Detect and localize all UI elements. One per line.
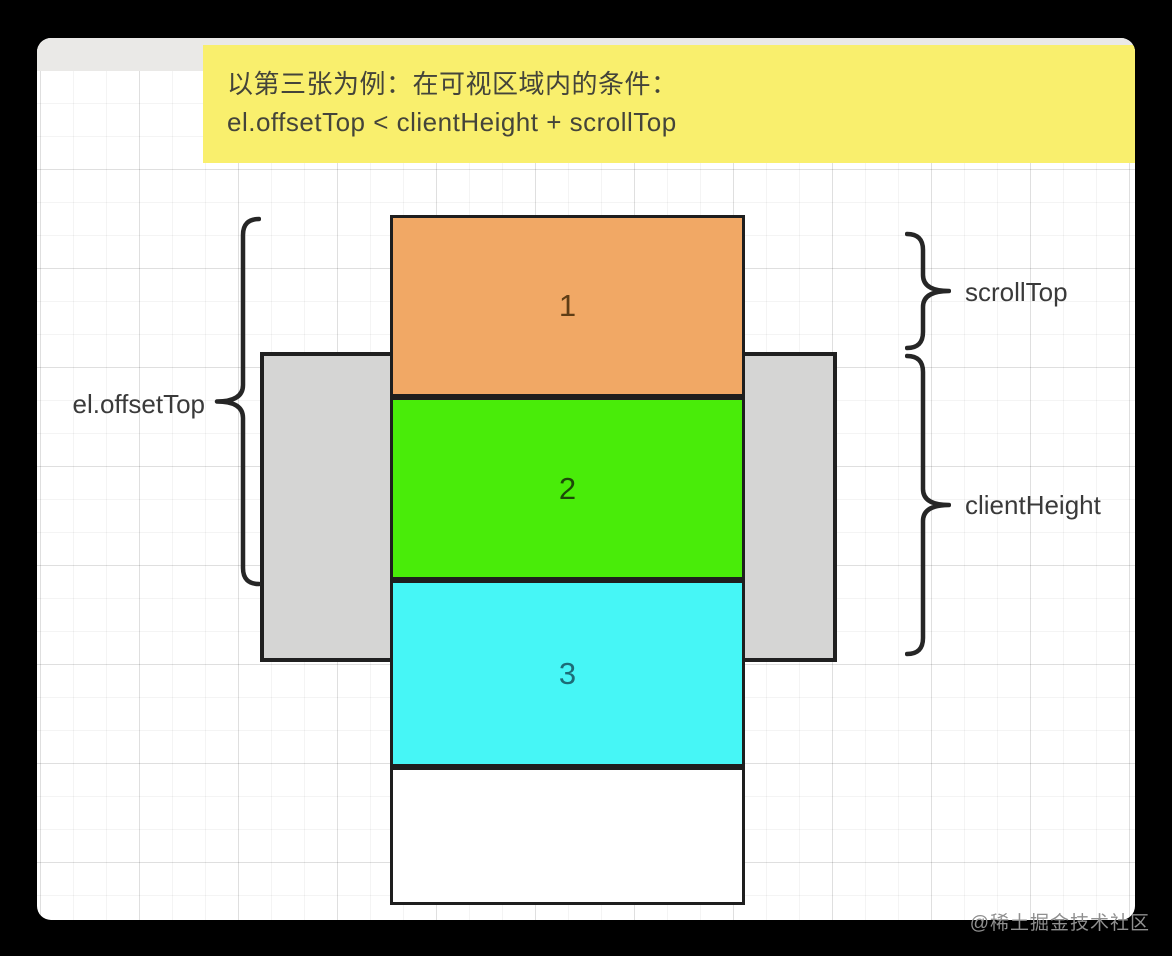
condition-note-line1: 以第三张为例：在可视区域内的条件： [227, 65, 1135, 103]
condition-note-banner: 以第三张为例：在可视区域内的条件： el.offsetTop < clientH… [203, 45, 1135, 163]
list-item-1: 1 [390, 215, 745, 397]
offset-top-label: el.offsetTop [37, 390, 205, 418]
offset-top-brace-icon [213, 215, 261, 588]
list-item-3-label: 3 [559, 656, 576, 692]
watermark-text: @稀土掘金技术社区 [970, 908, 1150, 935]
scroll-top-brace-icon [905, 230, 951, 352]
diagram-canvas: 以第三张为例：在可视区域内的条件： el.offsetTop < clientH… [37, 38, 1135, 920]
scroll-top-label: scrollTop [965, 278, 1068, 306]
list-item-2-label: 2 [559, 471, 576, 507]
client-height-brace-icon [905, 352, 951, 658]
list-item-3: 3 [390, 580, 745, 767]
list-item-1-label: 1 [559, 288, 576, 324]
list-item-4 [390, 767, 745, 905]
list-item-2: 2 [390, 397, 745, 580]
screenshot-frame: 以第三张为例：在可视区域内的条件： el.offsetTop < clientH… [0, 0, 1172, 956]
client-height-label: clientHeight [965, 491, 1101, 519]
condition-formula: el.offsetTop < clientHeight + scrollTop [227, 103, 1135, 141]
